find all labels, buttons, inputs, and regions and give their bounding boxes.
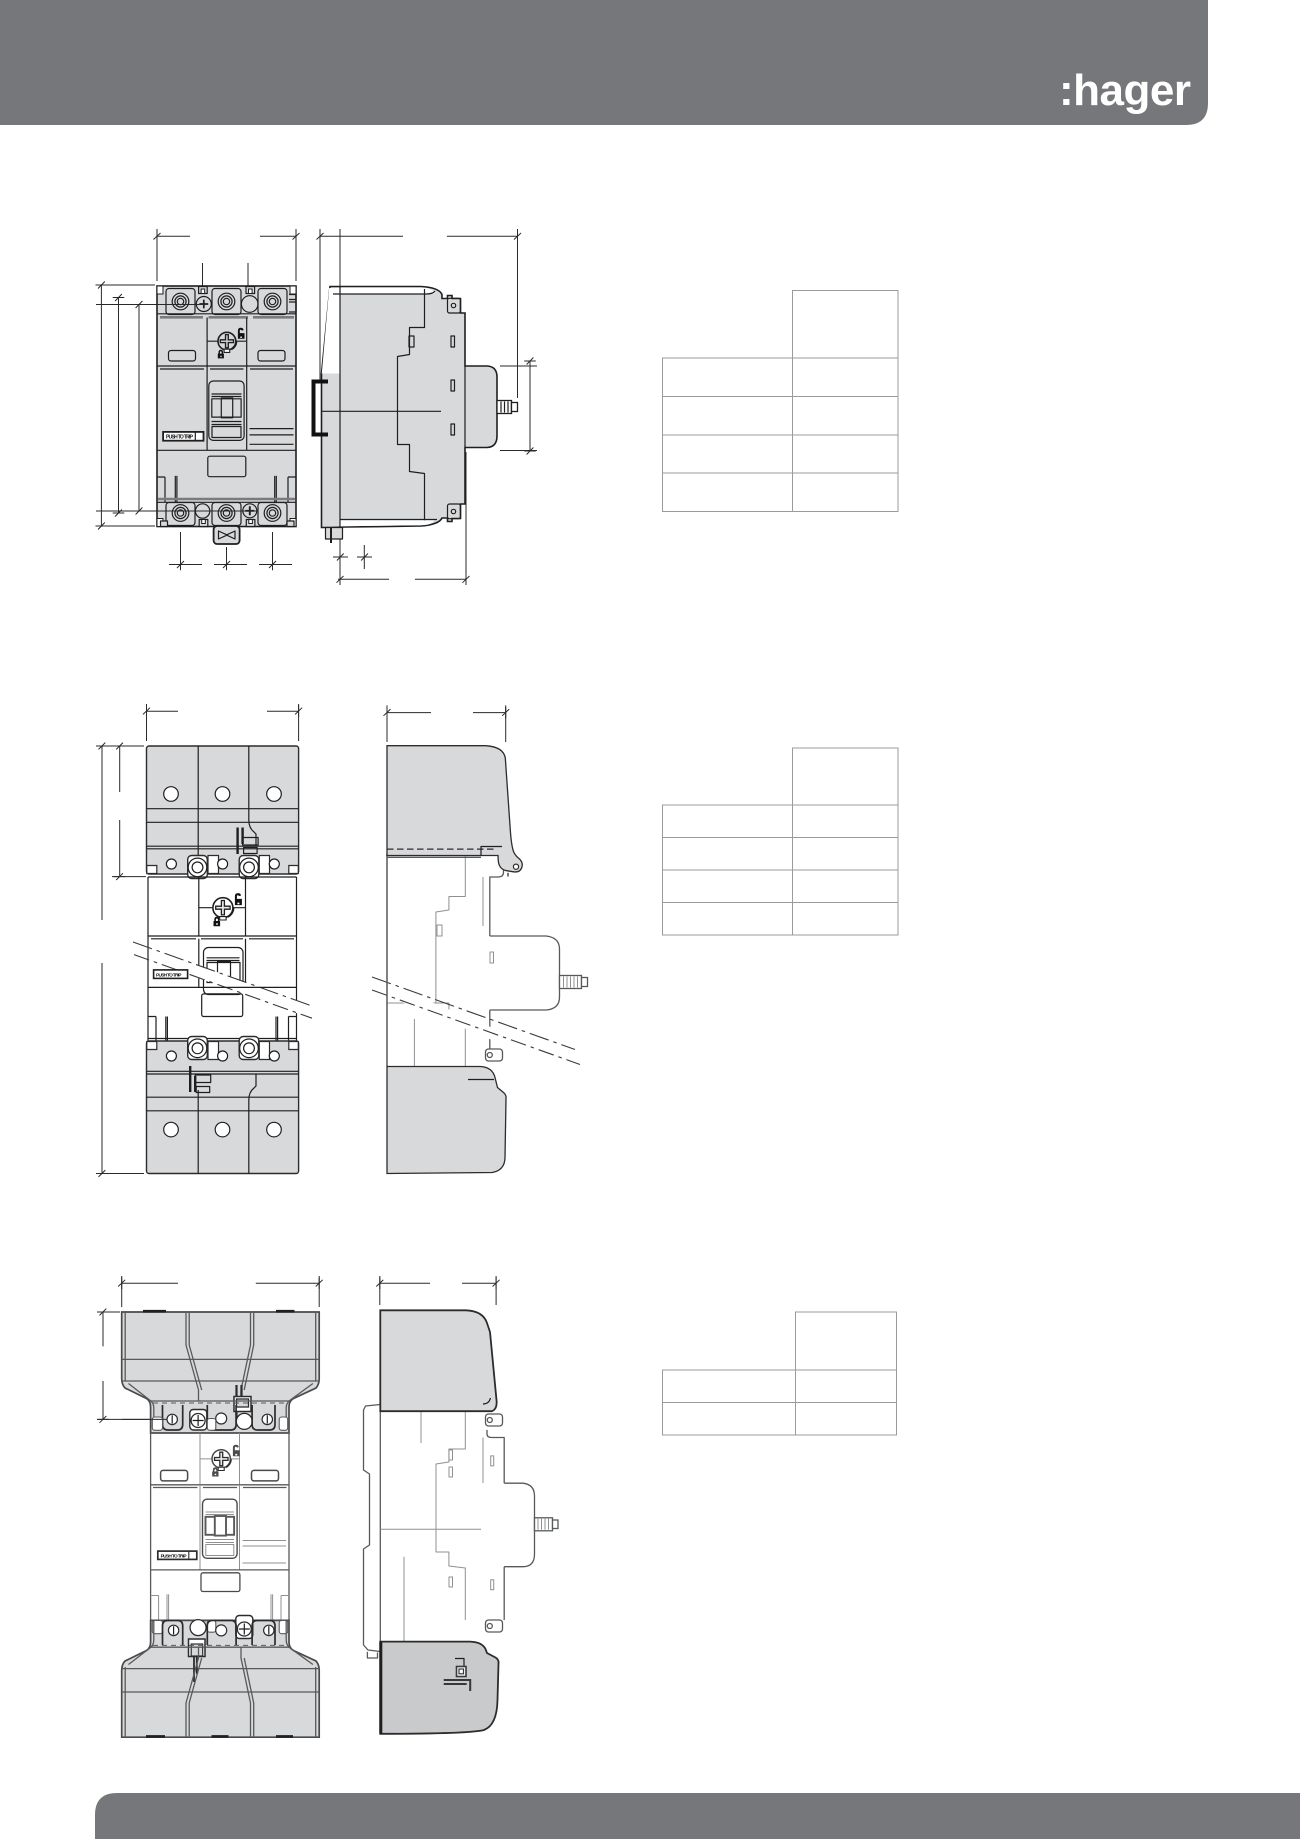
svg-text:PUSH TO TRIP: PUSH TO TRIP — [161, 1554, 188, 1560]
svg-text:PUSH TO TRIP: PUSH TO TRIP — [166, 435, 194, 441]
svg-text::hager: :hager — [1059, 66, 1191, 115]
svg-text:PUSH TO TRIP: PUSH TO TRIP — [156, 973, 182, 979]
